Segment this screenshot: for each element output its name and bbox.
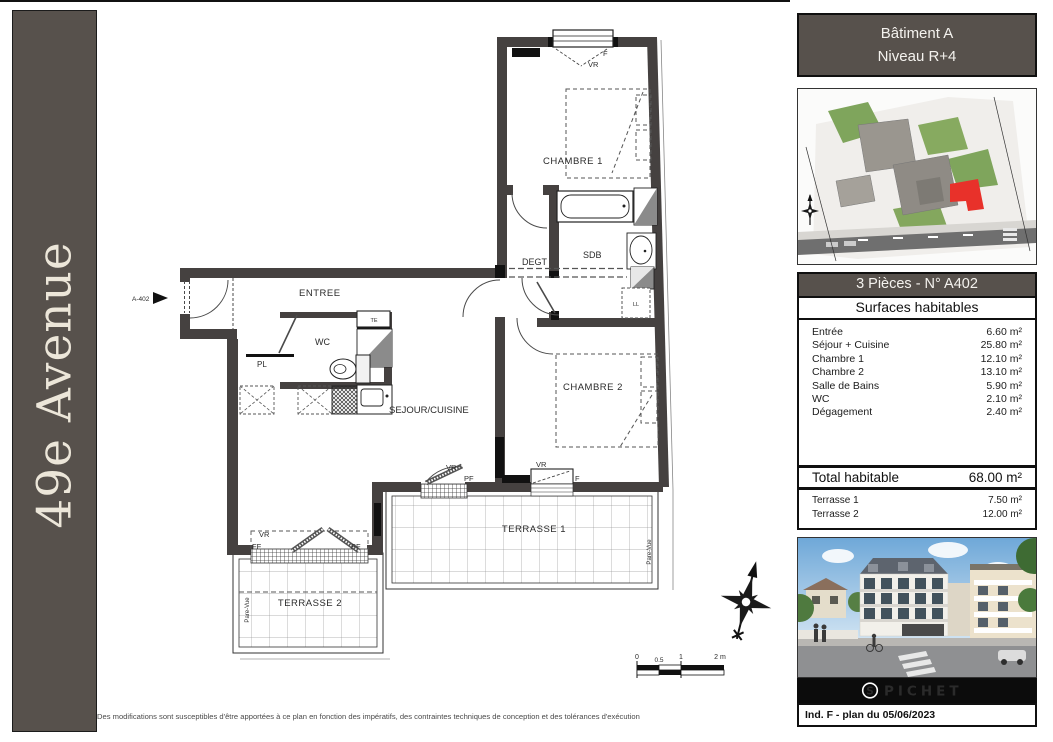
street-banner: 49e Avenue <box>12 10 97 732</box>
svg-text:0: 0 <box>635 654 639 661</box>
surfaces-subtitle: Surfaces habitables <box>799 298 1035 320</box>
surface-row: WC2.10 m² <box>799 393 1035 406</box>
total-value: 68.00 m² <box>969 470 1022 485</box>
svg-text:2 m: 2 m <box>714 654 726 661</box>
f-label: F <box>575 474 580 483</box>
vr-label: VR <box>259 530 270 539</box>
walls <box>180 37 669 555</box>
room-label-sejour: SEJOUR/CUISINE <box>389 405 469 416</box>
surface-row: Chambre 112.10 m² <box>799 353 1035 366</box>
total-label: Total habitable <box>812 470 899 485</box>
surface-row: Chambre 213.10 m² <box>799 366 1035 379</box>
revision-label: Ind. F - plan du 05/06/2023 <box>797 703 1037 727</box>
surfaces-panel: 3 Pièces - N° A402 Surfaces habitables E… <box>797 272 1037 530</box>
pichet-logo-s-icon: S <box>866 686 874 698</box>
unit-ref-arrow-icon <box>153 292 168 304</box>
terrace-2: TERRASSE 2 Pare-Vue <box>233 553 390 659</box>
pare-vue-label: Pare-Vue <box>647 539 653 565</box>
unit-title: 3 Pièces - N° A402 <box>799 274 1035 298</box>
room-label-entree: ENTREE <box>299 288 341 299</box>
floor-plan: TERRASSE 1 Pare-Vue TERRASSE 2 Pare-Vue <box>95 0 795 742</box>
vr-label: VR <box>446 463 457 472</box>
building-photo-box <box>797 537 1037 678</box>
disclaimer-text: Des modifications sont susceptibles d'êt… <box>97 712 697 721</box>
room-label-wc: WC <box>315 337 330 347</box>
wall-accents <box>246 37 618 536</box>
brand-name: PICHET <box>884 684 963 700</box>
fixtures <box>240 188 657 414</box>
building-header: Bâtiment A Niveau R+4 <box>797 13 1037 77</box>
ll-label: LL <box>633 302 639 308</box>
terrace-1-label: TERRASSE 1 <box>502 524 566 535</box>
pichet-logo: S PICHET <box>861 681 973 700</box>
degagement-zone <box>509 269 627 278</box>
ff-label: FF <box>252 542 262 551</box>
building-name: Bâtiment A <box>799 22 1035 45</box>
total-row: Total habitable 68.00 m² <box>799 465 1035 490</box>
terrace-row: Terrasse 17.50 m² <box>799 494 1035 508</box>
surface-row: Entrée6.60 m² <box>799 326 1035 339</box>
f-label: F <box>603 49 608 58</box>
building-level: Niveau R+4 <box>799 45 1035 68</box>
compass-icon <box>712 555 782 645</box>
unit-ref-label: A-402 <box>132 296 150 303</box>
terrace-rows: Terrasse 17.50 m² Terrasse 212.00 m² <box>799 490 1035 528</box>
site-plan-image <box>798 89 1036 264</box>
pl-label: PL <box>257 360 267 369</box>
surface-row: Séjour + Cuisine25.80 m² <box>799 339 1035 352</box>
surface-row: Dégagement2.40 m² <box>799 406 1035 419</box>
site-plan-box <box>797 88 1037 265</box>
street-name: 49e Avenue <box>27 242 82 529</box>
surface-row: Salle de Bains5.90 m² <box>799 380 1035 393</box>
svg-text:1: 1 <box>679 654 683 661</box>
pf-label: PF <box>464 474 474 483</box>
room-label-sdb: SDB <box>583 250 602 260</box>
vr-label: VR <box>536 460 547 469</box>
te-label: TE <box>370 318 377 324</box>
vr-label: VR <box>588 60 599 69</box>
svg-text:0.5: 0.5 <box>654 657 663 664</box>
brand-bar: S PICHET <box>797 678 1037 703</box>
pf-label: PF <box>351 542 361 551</box>
building-photo <box>798 538 1036 677</box>
room-label-chambre1: CHAMBRE 1 <box>543 156 603 167</box>
pare-vue-label: Pare-Vue <box>245 597 251 623</box>
surfaces-rows: Entrée6.60 m² Séjour + Cuisine25.80 m² C… <box>799 320 1035 420</box>
terrace-2-label: TERRASSE 2 <box>278 598 342 609</box>
room-label-degt: DEGT <box>522 257 548 267</box>
room-label-chambre2: CHAMBRE 2 <box>563 382 623 393</box>
terrace-row: Terrasse 212.00 m² <box>799 508 1035 522</box>
scale-bar: 0 0.5 1 2 m <box>635 654 726 678</box>
